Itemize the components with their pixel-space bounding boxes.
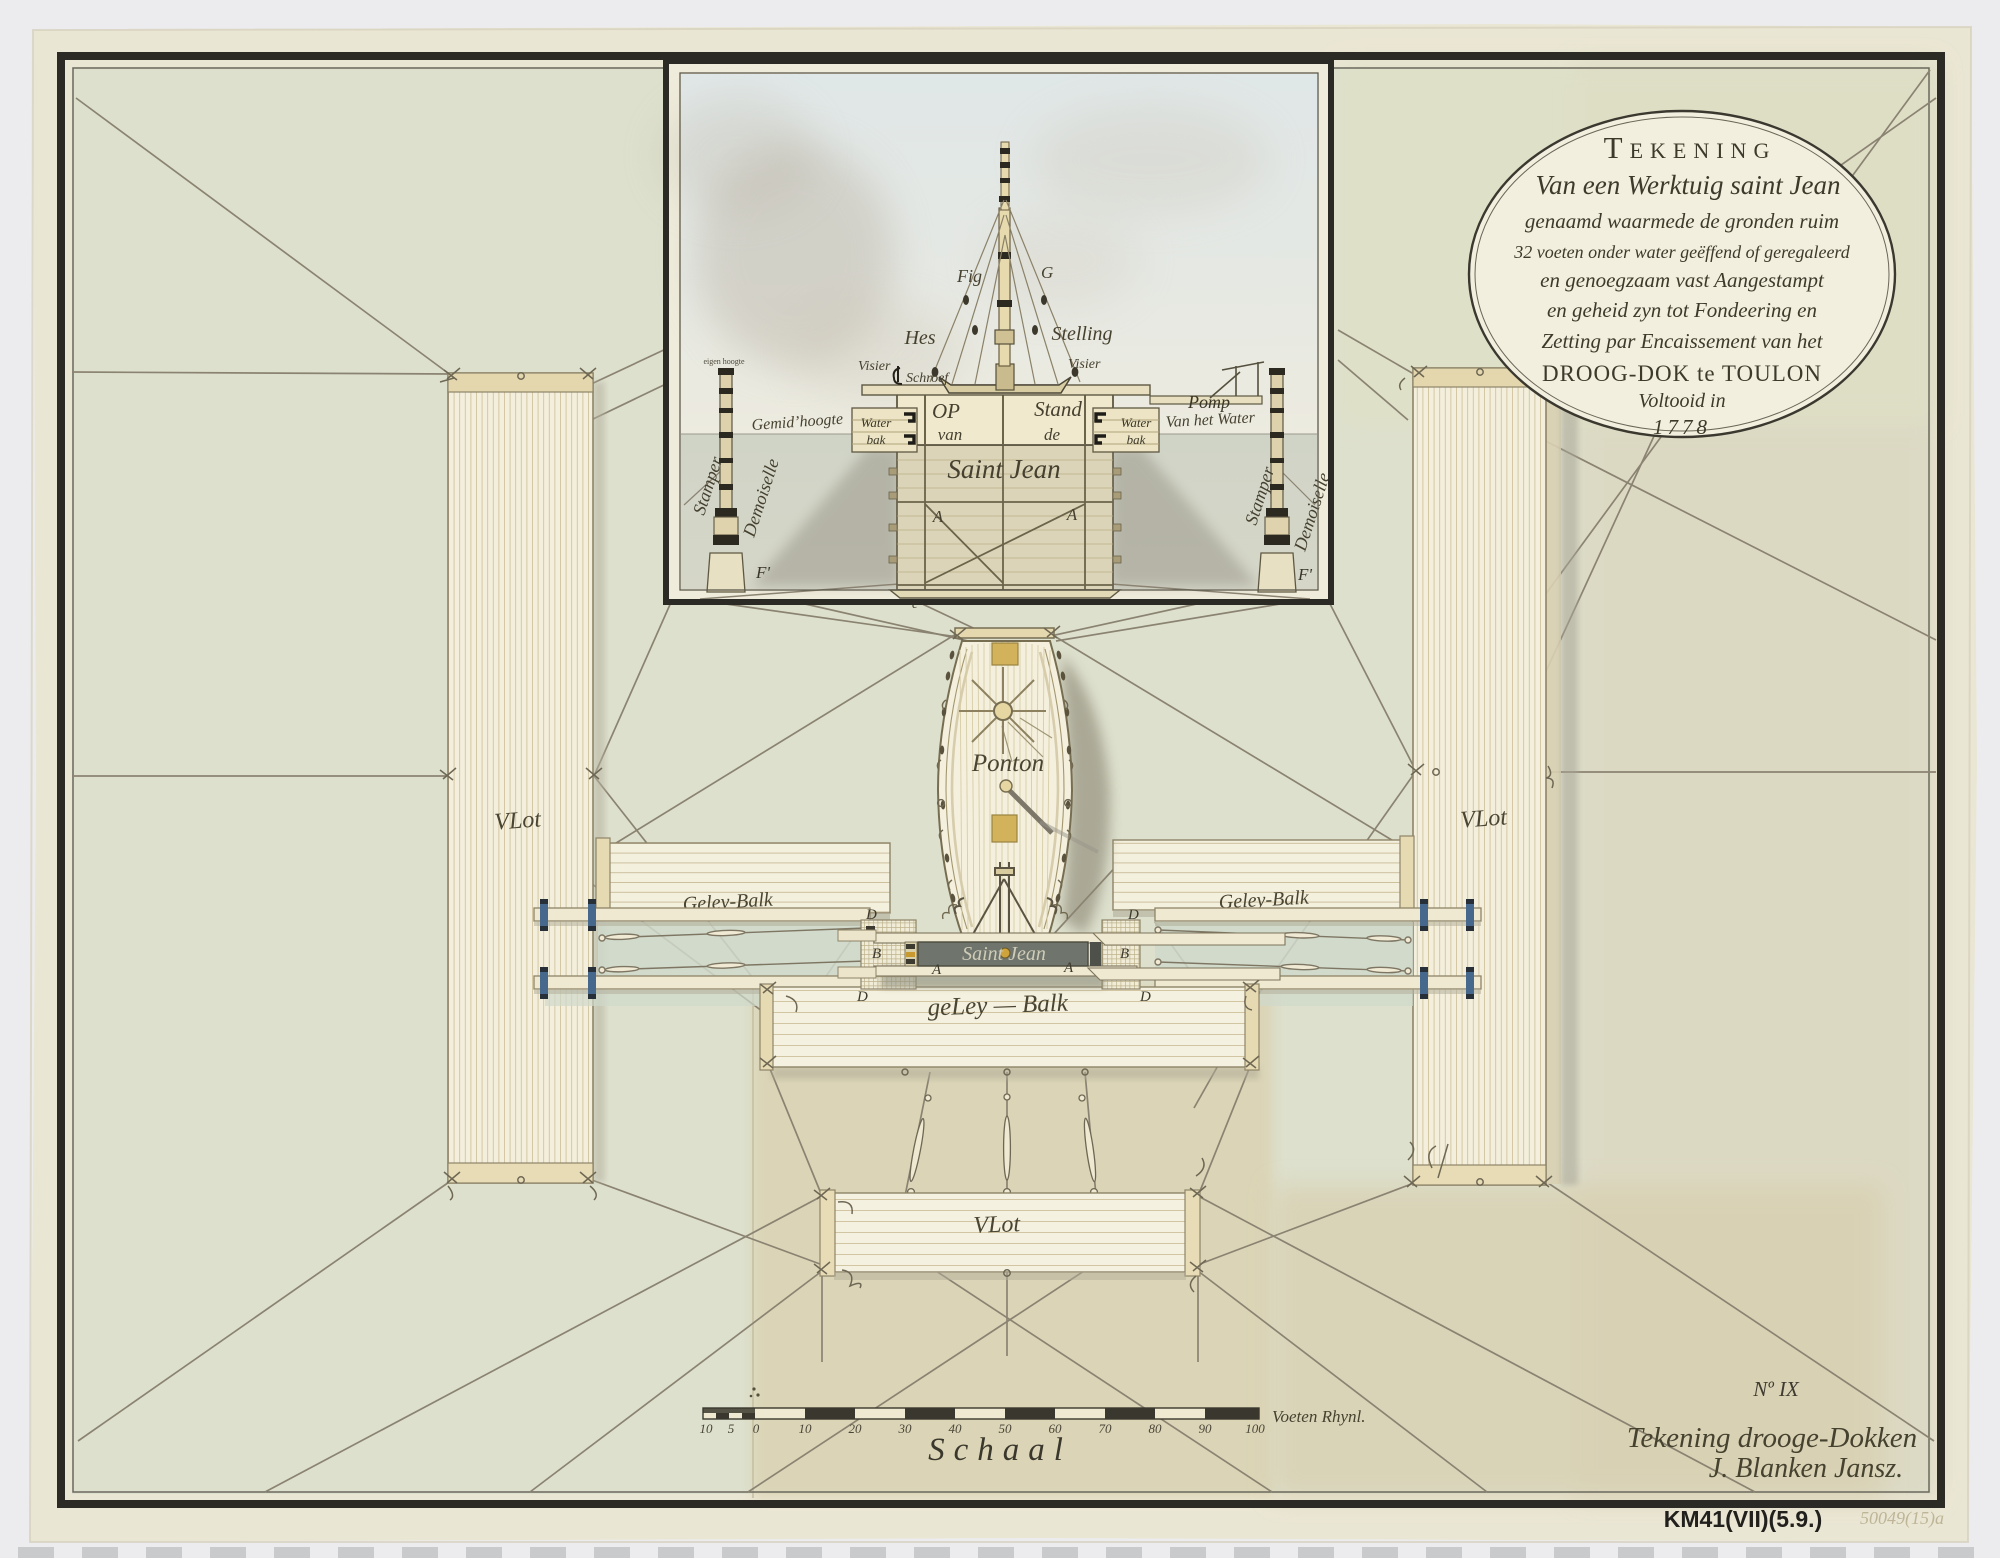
svg-text:Tekening drooge-Dokken: Tekening drooge-Dokken xyxy=(1627,1422,1917,1454)
svg-text:Saint Jean: Saint Jean xyxy=(962,943,1046,965)
svg-text:D: D xyxy=(856,989,868,1005)
svg-text:Schaal: Schaal xyxy=(928,1432,1072,1468)
svg-text:eigen hoogte: eigen hoogte xyxy=(703,357,745,366)
svg-text:Stand: Stand xyxy=(1034,397,1082,421)
svg-text:en geheid zyn tot Fondeering e: en geheid zyn tot Fondeering en xyxy=(1547,298,1817,322)
svg-text:90: 90 xyxy=(1199,1421,1213,1436)
svg-text:bak: bak xyxy=(1127,432,1146,447)
svg-text:A: A xyxy=(932,507,944,526)
svg-text:A: A xyxy=(1063,960,1074,976)
svg-text:Pomp: Pomp xyxy=(1187,392,1230,412)
svg-text:Voeten Rhynl.: Voeten Rhynl. xyxy=(1272,1407,1365,1426)
svg-text:32 voeten onder water geëffend: 32 voeten onder water geëffend of gerega… xyxy=(1513,242,1851,262)
svg-text:30: 30 xyxy=(898,1421,913,1436)
svg-text:D: D xyxy=(1127,907,1139,923)
svg-text:Tekening: Tekening xyxy=(1604,130,1777,165)
svg-text:10: 10 xyxy=(799,1421,813,1436)
svg-text:Van een Werktuig saint Jean: Van een Werktuig saint Jean xyxy=(1536,170,1841,200)
svg-text:Zetting par Encaissement van h: Zetting par Encaissement van het xyxy=(1541,329,1823,353)
svg-text:80: 80 xyxy=(1149,1421,1163,1436)
svg-text:DROOG-DOK te TOULON: DROOG-DOK te TOULON xyxy=(1542,361,1822,386)
svg-text:70: 70 xyxy=(1099,1421,1113,1436)
svg-text:D: D xyxy=(865,907,877,923)
svg-text:Ponton: Ponton xyxy=(971,750,1044,777)
svg-text:100: 100 xyxy=(1245,1421,1265,1436)
svg-text:F': F' xyxy=(755,563,770,582)
svg-text:Visier: Visier xyxy=(858,359,891,374)
svg-text:VLot: VLot xyxy=(1459,804,1509,833)
svg-text:Hes: Hes xyxy=(903,327,935,349)
svg-text:Voltooid in: Voltooid in xyxy=(1638,390,1725,412)
svg-text:5: 5 xyxy=(728,1421,735,1436)
svg-text:B: B xyxy=(872,946,881,962)
svg-text:Water: Water xyxy=(1121,415,1153,430)
svg-text:genaamd waarmede de gronden ru: genaamd waarmede de gronden ruim xyxy=(1525,209,1839,233)
svg-text:G: G xyxy=(1041,263,1053,282)
svg-text:0: 0 xyxy=(753,1421,760,1436)
svg-text:Visier: Visier xyxy=(1068,357,1101,372)
svg-text:KM41(VII)(5.9.): KM41(VII)(5.9.) xyxy=(1664,1506,1822,1532)
svg-text:VLot: VLot xyxy=(493,806,543,835)
svg-text:en genoegzaam vast Aangestampt: en genoegzaam vast Aangestampt xyxy=(1540,268,1825,292)
svg-text:10: 10 xyxy=(700,1421,714,1436)
svg-text:A: A xyxy=(1066,505,1078,524)
svg-text:Schroef: Schroef xyxy=(906,371,950,386)
svg-text:geLey — Balk: geLey — Balk xyxy=(927,990,1069,1022)
svg-text:F': F' xyxy=(1297,565,1312,584)
svg-text:Stelling: Stelling xyxy=(1051,323,1112,345)
svg-text:Fig: Fig xyxy=(956,266,982,286)
svg-text:de: de xyxy=(1044,425,1061,444)
svg-text:50049(15)a: 50049(15)a xyxy=(1860,1508,1944,1529)
svg-text:OP: OP xyxy=(932,399,960,423)
svg-text:20: 20 xyxy=(849,1421,863,1436)
svg-text:D: D xyxy=(1139,989,1151,1005)
svg-text:B: B xyxy=(1120,946,1129,962)
svg-text:van: van xyxy=(938,425,963,444)
svg-text:bak: bak xyxy=(867,432,886,447)
svg-text:1778: 1778 xyxy=(1653,415,1711,439)
svg-text:Water: Water xyxy=(861,415,893,430)
svg-text:Saint Jean: Saint Jean xyxy=(947,454,1060,484)
svg-text:A: A xyxy=(931,962,942,978)
svg-text:Nº IX: Nº IX xyxy=(1752,1377,1800,1401)
svg-text:VLot: VLot xyxy=(973,1211,1022,1239)
svg-text:J. Blanken Jansz.: J. Blanken Jansz. xyxy=(1709,1453,1903,1484)
